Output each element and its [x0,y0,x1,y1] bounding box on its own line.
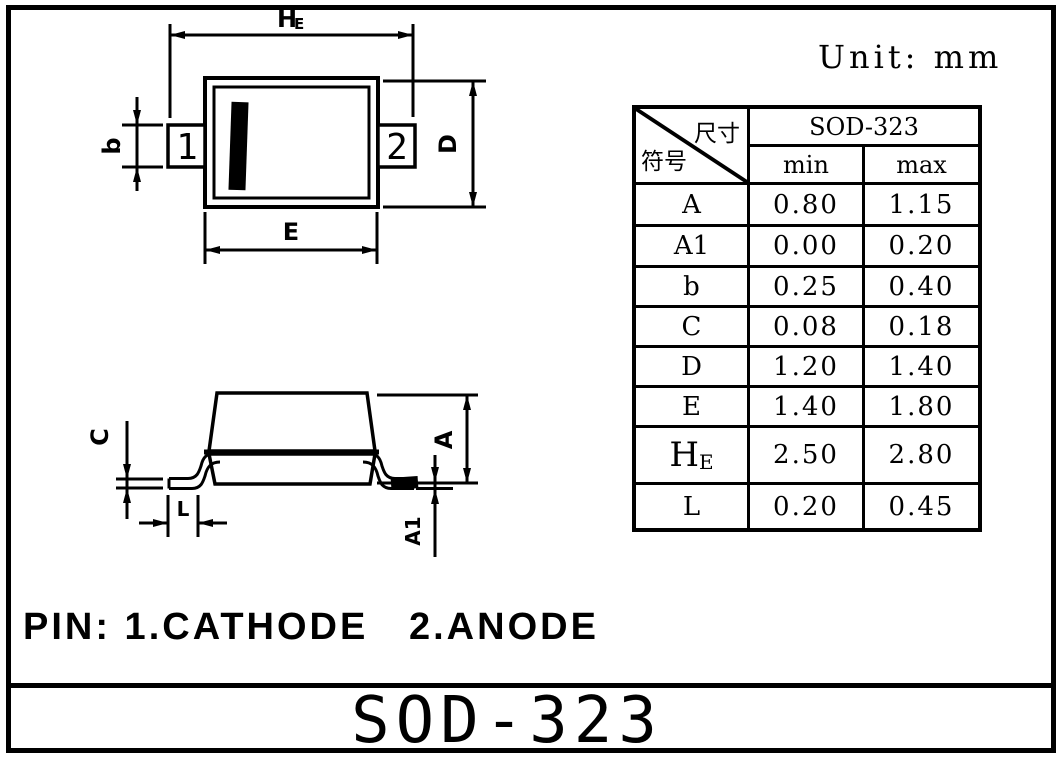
row-D-symbol: D [636,348,750,388]
row-E-max: 1.80 [865,388,978,428]
pin-assignment-note: PIN: 1.CATHODE 2.ANODE [23,606,599,649]
he-symbol-sub: E [699,450,714,474]
row-E-symbol: E [636,388,750,428]
dim-b: b [98,97,163,191]
dim-label-l: L [177,497,190,521]
dim-label-he-sub: E [294,15,304,33]
row-L-max: 0.45 [865,485,978,528]
dim-e: E [205,212,377,264]
dim-l: L [139,495,227,537]
dim-c: C [86,421,163,519]
corner-label-dimension: 尺寸 [694,114,740,148]
side-view-drawing: C L A [86,393,478,557]
dim-label-a1: A1 [401,516,425,545]
datasheet-page: Unit: mm H E 1 2 [0,0,1062,759]
row-C-symbol: C [636,308,750,348]
row-b-symbol: b [636,268,750,308]
row-C-min: 0.08 [750,308,865,348]
row-A1-max: 0.20 [865,227,978,268]
table-col-min: min [750,147,865,185]
pin1-number: 1 [176,127,198,168]
table-package-header: SOD-323 [750,109,978,147]
row-L-min: 0.20 [750,485,865,528]
row-b-min: 0.25 [750,268,865,308]
row-C-max: 0.18 [865,308,978,348]
he-symbol-main: H [669,435,699,475]
body-bottom-profile [209,454,375,484]
dim-a1: A1 [401,455,453,557]
top-view-drawing: H E 1 2 b [98,5,486,264]
row-HE-symbol: HE [636,428,750,485]
table-col-max: max [865,147,978,185]
cathode-band [228,102,248,191]
row-D-min: 1.20 [750,348,865,388]
dim-a: A [377,395,478,483]
dim-label-d: D [434,134,462,154]
row-E-min: 1.40 [750,388,865,428]
row-A1-symbol: A1 [636,227,750,268]
body-top-profile [209,393,375,451]
row-A-min: 0.80 [750,185,865,227]
dim-label-c: C [86,428,114,446]
dim-label-b: b [98,137,126,154]
row-HE-min: 2.50 [750,428,865,485]
row-HE-max: 2.80 [865,428,978,485]
pin2-number: 2 [386,127,408,168]
row-D-max: 1.40 [865,348,978,388]
dim-label-a: A [430,430,458,449]
row-L-symbol: L [636,485,750,528]
row-A-symbol: A [636,185,750,227]
row-A-max: 1.15 [865,185,978,227]
package-title: SOD-323 [351,684,663,758]
table-corner-cell: 尺寸 符号 [636,109,750,185]
row-b-max: 0.40 [865,268,978,308]
dimension-table: 尺寸 符号 SOD-323 min max A 0.80 1.15 A1 0.0… [632,105,982,532]
row-A1-min: 0.00 [750,227,865,268]
dim-label-e: E [283,218,299,246]
title-block: SOD-323 [6,683,1056,753]
corner-label-symbol: 符号 [641,142,687,176]
